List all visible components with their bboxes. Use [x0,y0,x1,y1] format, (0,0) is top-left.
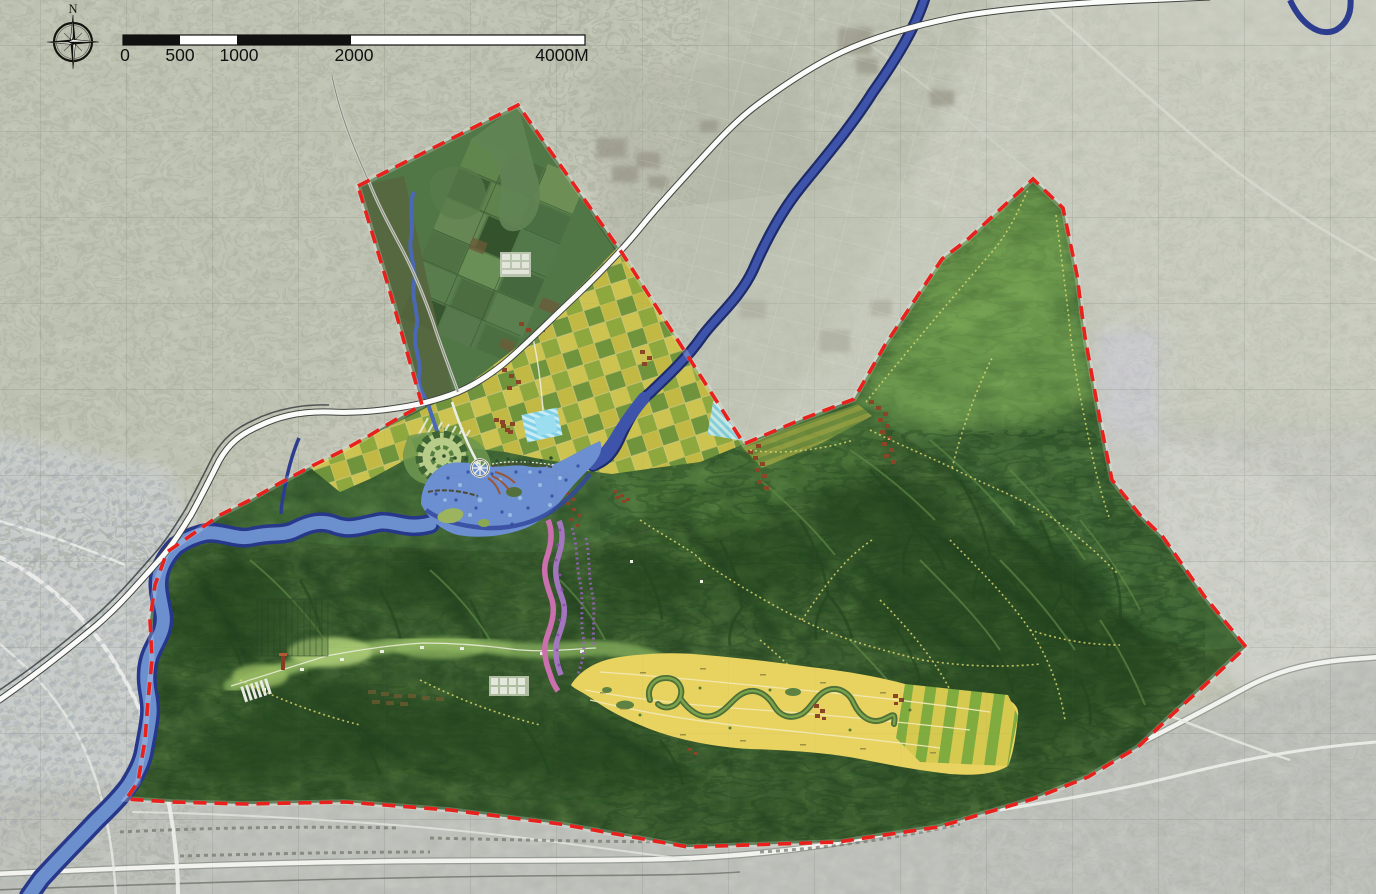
svg-text:1000: 1000 [220,45,259,65]
svg-text:4000M: 4000M [535,45,589,65]
svg-text:2000: 2000 [335,45,374,65]
svg-text:N: N [68,2,77,16]
svg-text:0: 0 [120,45,130,65]
svg-text:500: 500 [165,45,194,65]
